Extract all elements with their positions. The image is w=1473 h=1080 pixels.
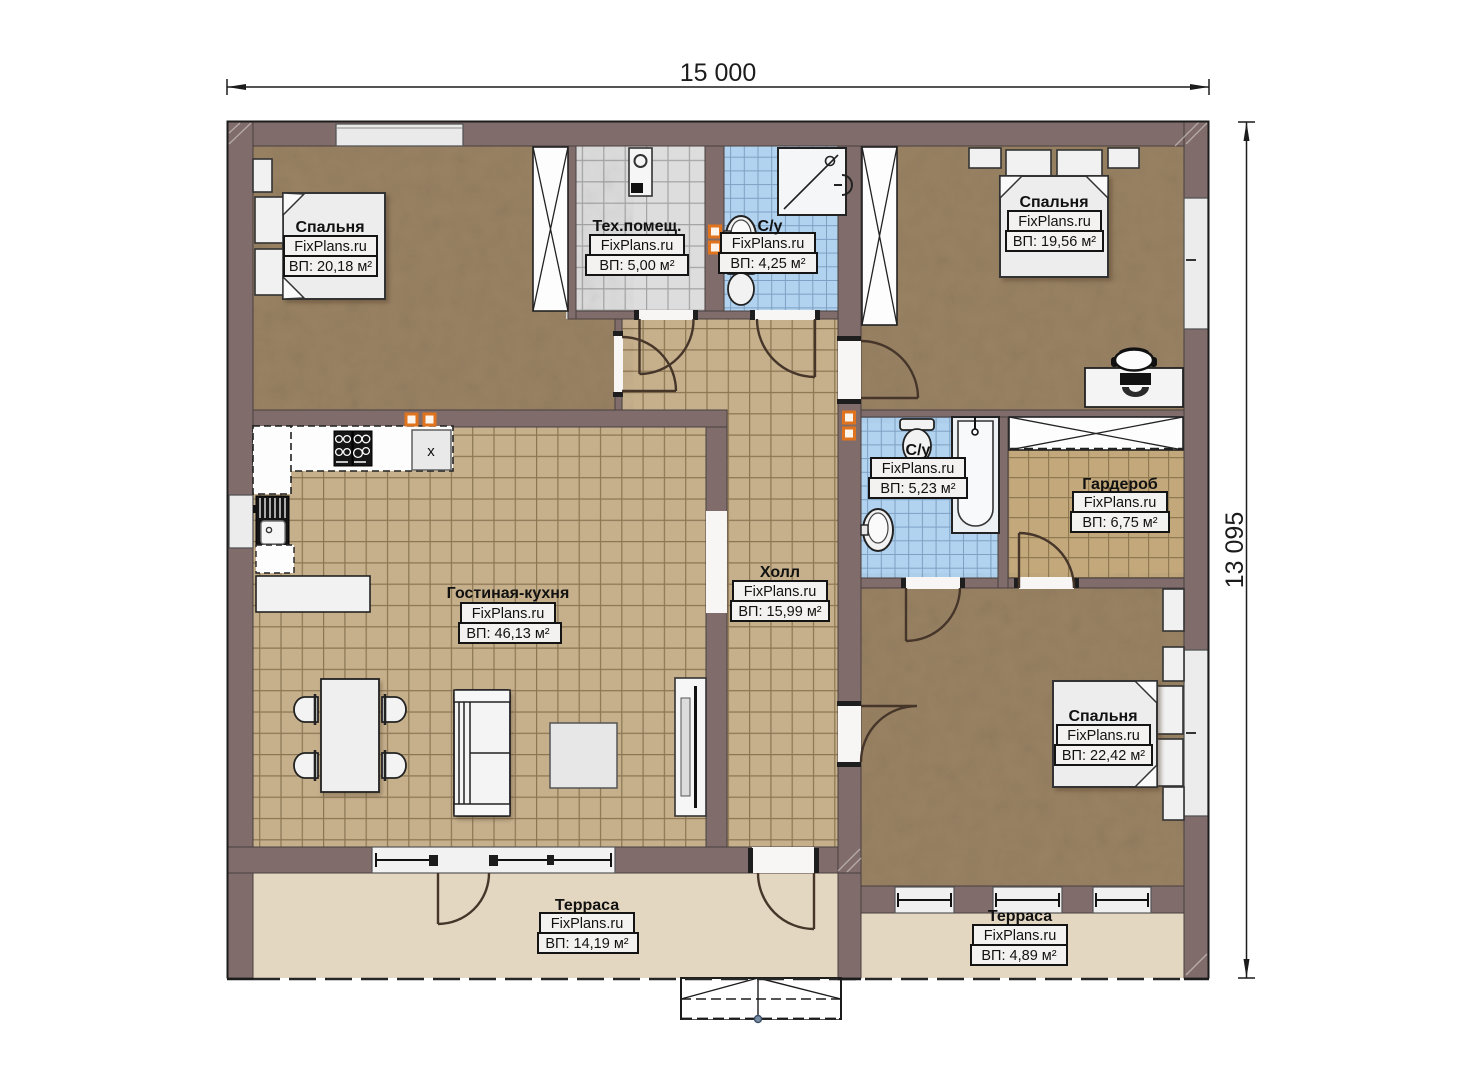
svg-text:ВП: 20,18 м²: ВП: 20,18 м² <box>289 259 372 275</box>
svg-text:Тех.помещ.: Тех.помещ. <box>593 218 682 235</box>
svg-text:ВП: 4,25 м²: ВП: 4,25 м² <box>730 256 805 272</box>
svg-text:FixPlans.ru: FixPlans.ru <box>732 236 805 252</box>
svg-text:FixPlans.ru: FixPlans.ru <box>882 461 955 477</box>
svg-text:ВП: 5,23 м²: ВП: 5,23 м² <box>880 481 955 497</box>
svg-text:Терраса: Терраса <box>988 908 1052 925</box>
svg-text:ВП: 4,89 м²: ВП: 4,89 м² <box>981 948 1056 964</box>
svg-text:15 000: 15 000 <box>680 59 756 87</box>
svg-text:FixPlans.ru: FixPlans.ru <box>294 239 367 255</box>
svg-text:ВП: 19,56 м²: ВП: 19,56 м² <box>1013 234 1096 250</box>
svg-text:13 095: 13 095 <box>1221 512 1249 588</box>
svg-text:ВП: 5,00 м²: ВП: 5,00 м² <box>599 258 674 274</box>
svg-text:Спальня: Спальня <box>1019 194 1088 211</box>
svg-text:Спальня: Спальня <box>295 219 364 236</box>
svg-text:ВП: 14,19 м²: ВП: 14,19 м² <box>545 936 628 952</box>
svg-text:FixPlans.ru: FixPlans.ru <box>551 916 624 932</box>
svg-text:x: x <box>427 443 435 460</box>
svg-text:FixPlans.ru: FixPlans.ru <box>472 606 545 622</box>
svg-text:ВП: 15,99 м²: ВП: 15,99 м² <box>738 604 821 620</box>
svg-text:FixPlans.ru: FixPlans.ru <box>1084 495 1157 511</box>
svg-text:FixPlans.ru: FixPlans.ru <box>1018 214 1091 230</box>
svg-text:Холл: Холл <box>760 564 800 581</box>
svg-text:Гардероб: Гардероб <box>1082 476 1158 493</box>
svg-text:Терраса: Терраса <box>555 897 619 914</box>
svg-text:С/у: С/у <box>906 442 931 459</box>
svg-text:FixPlans.ru: FixPlans.ru <box>601 238 674 254</box>
svg-text:ВП: 46,13 м²: ВП: 46,13 м² <box>466 626 549 642</box>
svg-text:С/у: С/у <box>758 218 783 235</box>
svg-text:FixPlans.ru: FixPlans.ru <box>744 584 817 600</box>
svg-text:ВП: 6,75 м²: ВП: 6,75 м² <box>1082 515 1157 531</box>
svg-text:FixPlans.ru: FixPlans.ru <box>1067 728 1140 744</box>
svg-text:Спальня: Спальня <box>1068 708 1137 725</box>
svg-text:Гостиная-кухня: Гостиная-кухня <box>447 585 570 602</box>
svg-text:ВП: 22,42 м²: ВП: 22,42 м² <box>1062 748 1145 764</box>
svg-text:FixPlans.ru: FixPlans.ru <box>984 928 1057 944</box>
